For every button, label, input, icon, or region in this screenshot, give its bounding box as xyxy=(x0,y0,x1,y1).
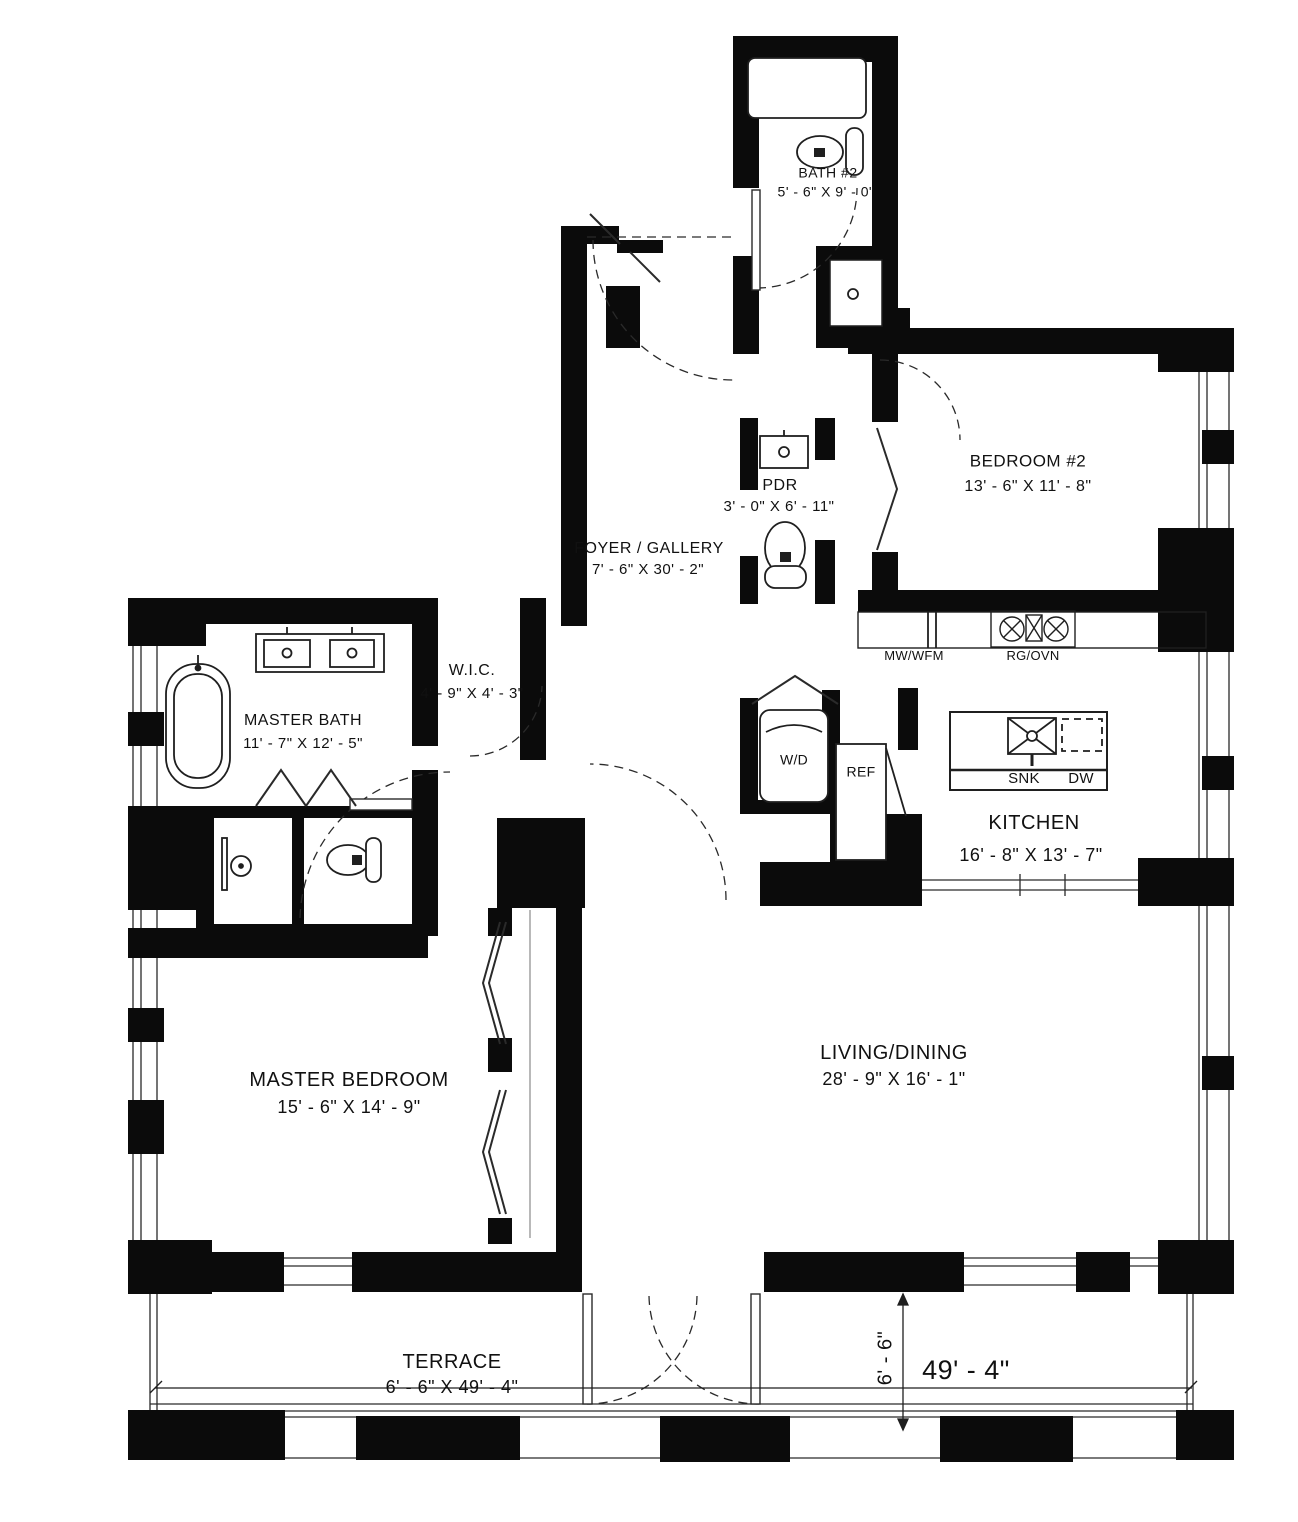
bath2-dims: 5' - 6" X 9' - 0" xyxy=(778,184,875,199)
kitchen-dims: 16' - 8" X 13' - 7" xyxy=(959,846,1102,866)
master-bath-door-leaf xyxy=(350,799,412,810)
terrace-dims: 6' - 6" X 49' - 4" xyxy=(386,1378,519,1398)
closet-bifold-upper xyxy=(483,922,500,1044)
dw-label: DW xyxy=(1068,771,1094,788)
terrace-length-dimension: 49' - 4" xyxy=(922,1356,1010,1386)
foyer-door-swing xyxy=(590,764,726,900)
bedroom2-dims: 13' - 6" X 11' - 8" xyxy=(964,478,1091,496)
bedroom2-closet-bifold xyxy=(877,428,897,550)
wic-label: W.I.C. xyxy=(449,662,496,680)
bath2-sink-icon xyxy=(848,289,858,299)
bath2-shower-icon xyxy=(748,58,866,118)
fixtures xyxy=(166,58,1206,890)
mw-wfm-label: MW/WFM xyxy=(884,649,944,663)
master-vanity-icon xyxy=(256,627,384,672)
living-dining-dims: 28' - 9" X 16' - 1" xyxy=(822,1070,965,1090)
snk-label: SNK xyxy=(1008,771,1040,788)
master-bath-dims: 11' - 7" X 12' - 5" xyxy=(243,736,363,753)
bath2-door-leaf xyxy=(752,190,760,290)
pdr-dims: 3' - 0" X 6' - 11" xyxy=(724,499,835,516)
bedroom2-label: BEDROOM #2 xyxy=(970,453,1086,472)
floor-plan-drawing xyxy=(0,0,1298,1522)
terrace-label: TERRACE xyxy=(402,1351,501,1373)
foyer-dims: 7' - 6" X 30' - 2" xyxy=(592,562,704,579)
wd-label: W/D xyxy=(780,752,808,767)
dimension-lines xyxy=(150,1294,1197,1430)
bath2-label: BATH #2 xyxy=(798,165,857,180)
rg-ovn-label: RG/OVN xyxy=(1006,649,1059,663)
terrace-depth-dimension: 6' - 6" xyxy=(875,1331,898,1385)
living-dining-label: LIVING/DINING xyxy=(820,1042,968,1064)
master-bath-swing-doors xyxy=(256,770,356,806)
pdr-toilet-icon xyxy=(765,522,806,588)
master-bath-label: MASTER BATH xyxy=(244,712,362,730)
closet-bifold-lower xyxy=(483,1090,500,1214)
pdr-label: PDR xyxy=(762,477,797,495)
pdr-sink-icon xyxy=(760,430,808,468)
bathtub-icon xyxy=(166,655,230,788)
foyer-label: FOYER / GALLERY xyxy=(574,540,723,558)
master-bedroom-label: MASTER BEDROOM xyxy=(249,1069,448,1091)
range-icon xyxy=(991,611,1075,647)
master-bedroom-dims: 15' - 6" X 14' - 9" xyxy=(277,1098,420,1118)
dishwasher-icon xyxy=(1062,719,1102,751)
floor-plan: BATH #2 5' - 6" X 9' - 0" BEDROOM #2 13'… xyxy=(0,0,1298,1522)
closet-door-leaf xyxy=(630,252,660,282)
ref-label: REF xyxy=(847,764,876,779)
wic-dims: 4' - 9" X 4' - 3" xyxy=(420,686,523,703)
kitchen-label: KITCHEN xyxy=(988,812,1079,834)
